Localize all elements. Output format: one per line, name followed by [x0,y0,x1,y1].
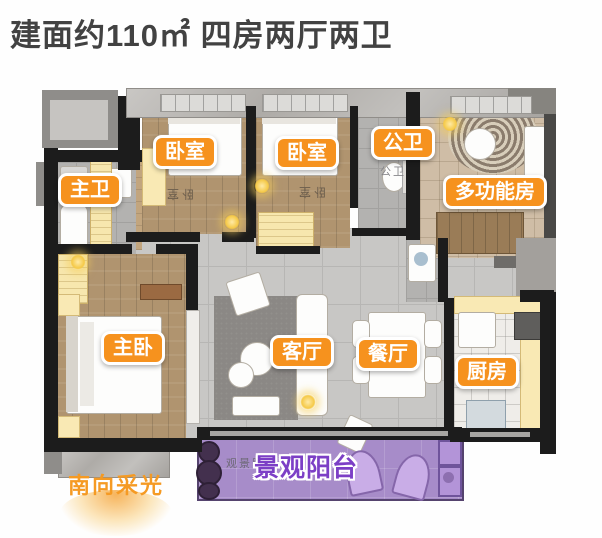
master-bed-pillows [80,322,94,406]
wall-left [44,148,58,470]
stove [514,312,542,340]
nightstand-bottom [58,416,80,438]
wall [44,452,62,474]
room-label-master-bedroom: 主卧 [101,331,165,365]
tv-cabinet [186,310,200,424]
wall [222,232,254,242]
ceiling-light-icon [70,254,86,270]
room-label-multi-function: 多功能房 [443,175,547,209]
ceiling-light-icon [442,116,458,132]
wall [126,232,200,242]
multi-cabinet [436,212,524,254]
public-bath-floor-text: 公卫 [380,163,406,179]
room-label-bedroom-1: 卧室 [153,135,217,169]
room-label-dining-room: 餐厅 [356,337,420,371]
bedroom-1-floor-text: 卧室 [164,186,194,203]
ac-ledge-inner [50,100,108,140]
wall [352,228,410,236]
room-label-bedroom-2: 卧室 [275,136,339,170]
ceiling-light-icon [300,394,316,410]
wall [56,150,142,162]
balcony-label: 景观阳台 [254,448,358,484]
wall-kitchen-left [444,298,454,430]
floorplan-infographic: 建面约110㎡ 四房两厅两卫 [0,0,602,538]
room-label-kitchen: 厨房 [455,355,519,389]
wall [186,248,198,310]
master-bed-headboard [66,316,78,412]
bedroom-2-floor-text: 卧室 [296,184,326,201]
washer-drum [414,252,428,266]
coffee-table-small [228,362,254,388]
wall-master-bottom [44,438,202,452]
kitchen-sink [466,400,506,430]
window [210,431,448,436]
window [470,432,530,437]
balcony-cabinet [438,440,462,466]
room-label-master-bath: 主卫 [58,173,122,207]
balcony-washer-drum [443,472,454,483]
plant-icon [198,482,220,500]
wall [56,244,132,254]
round-table [464,128,496,160]
master-dresser [140,284,182,300]
wall [350,106,358,208]
window [160,94,246,112]
south-light-annotation: 南向采光 [68,468,164,500]
window [262,94,348,112]
wall [406,92,420,240]
wall [256,246,320,254]
wall [438,238,448,302]
dining-chair [424,320,442,348]
wall [246,106,256,238]
nightstand-top [58,294,80,316]
room-label-public-bath: 公卫 [371,126,435,160]
dining-chair [424,356,442,384]
exterior-chunk-right [516,238,556,296]
fridge [458,312,496,348]
ceiling-light-icon [254,178,270,194]
window [450,96,532,114]
wall [520,290,554,302]
page-title: 建面约110㎡ 四房两厅两卫 [10,10,393,55]
room-label-living-room: 客厅 [270,335,334,369]
ceiling-light-icon [224,214,240,230]
tv-bench [232,396,280,416]
